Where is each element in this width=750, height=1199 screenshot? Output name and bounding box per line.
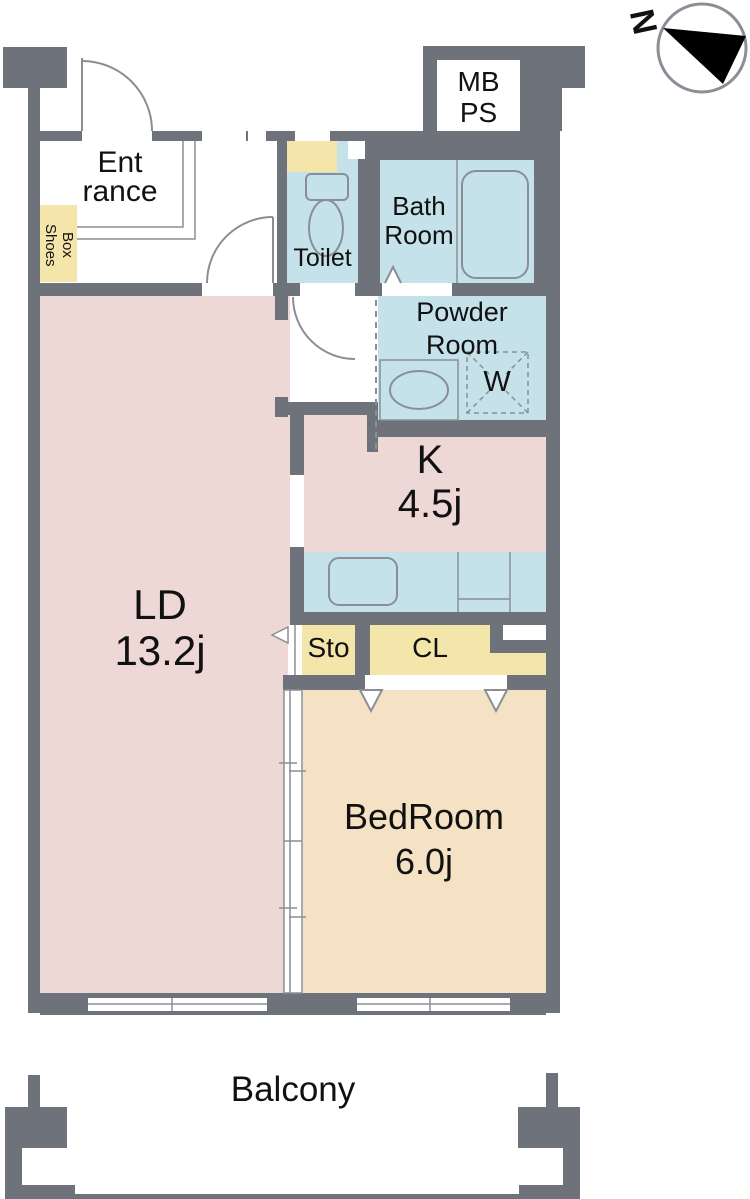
bath-right-wall [534, 141, 546, 296]
pillar-bottom-right [518, 1107, 580, 1148]
powder-bottom-wall [378, 420, 546, 437]
hall-ld-door-opening [202, 283, 273, 296]
top-wall-slot-toilet [295, 131, 330, 141]
living-dining-label: LD 13.2j [60, 582, 260, 674]
kitchen-label: K 4.5j [330, 438, 530, 526]
toilet-shelf [287, 141, 337, 172]
storage-label: Sto [302, 632, 355, 664]
outer-wall-right [546, 141, 560, 1013]
powder-room-label: Powder Room [378, 296, 546, 362]
balcony-railing [60, 1194, 530, 1199]
balcony-left-wall [28, 1075, 40, 1107]
washer-label: W [477, 366, 517, 399]
top-wall-vent-1 [202, 131, 246, 141]
toilet-left-wall [277, 141, 287, 296]
entrance-door-swing [82, 58, 152, 131]
north-compass [658, 4, 746, 92]
entrance-label: Ent rance [55, 148, 185, 206]
ld-kitchen-opening [290, 475, 304, 547]
entrance-door-opening [82, 131, 152, 141]
balcony-right-partition [546, 1013, 558, 1073]
bedroom-window [357, 998, 510, 1011]
floor-plan: Ent rance Shoes Box Toilet Bath Room MB … [0, 0, 750, 1199]
mbps-label: MB PS [437, 66, 520, 128]
closet-right-slot [503, 625, 546, 640]
bedroom-label: BedRoom 6.0j [324, 794, 524, 884]
toilet-door-opening [300, 283, 355, 296]
closet-door-opening [365, 675, 507, 690]
pillar-bottom-left [5, 1107, 67, 1148]
north-letter: N [618, 0, 665, 46]
ld-window [88, 998, 267, 1011]
top-wall-vent-2 [248, 131, 266, 141]
toilet-label: Toilet [287, 244, 358, 273]
counter-bottom-wall [290, 612, 546, 625]
pillar-top-left [3, 47, 67, 88]
closet-label: CL [370, 632, 490, 664]
storage-closet-wall [355, 625, 370, 675]
wall-niche [348, 141, 365, 159]
outer-wall-left [28, 88, 40, 1013]
toilet-door-swing [293, 297, 355, 359]
ld-hall-wall-upper [275, 296, 288, 320]
shoes-box-label: Shoes Box [41, 207, 77, 283]
kitchen-counter [304, 552, 546, 612]
bath-door-opening [382, 283, 452, 296]
ld-storage-opening [288, 625, 302, 675]
balcony-left-partition [28, 1013, 40, 1075]
closet-floor-right [490, 653, 546, 675]
bath-room-label: Bath Room [364, 192, 474, 250]
bath-top-wall [380, 141, 546, 160]
balcony-bar-right [519, 1185, 580, 1199]
balcony-label: Balcony [173, 1070, 413, 1110]
north-needle [663, 28, 746, 84]
ld-door-swing [207, 217, 273, 283]
balcony-right-wall [546, 1073, 558, 1107]
